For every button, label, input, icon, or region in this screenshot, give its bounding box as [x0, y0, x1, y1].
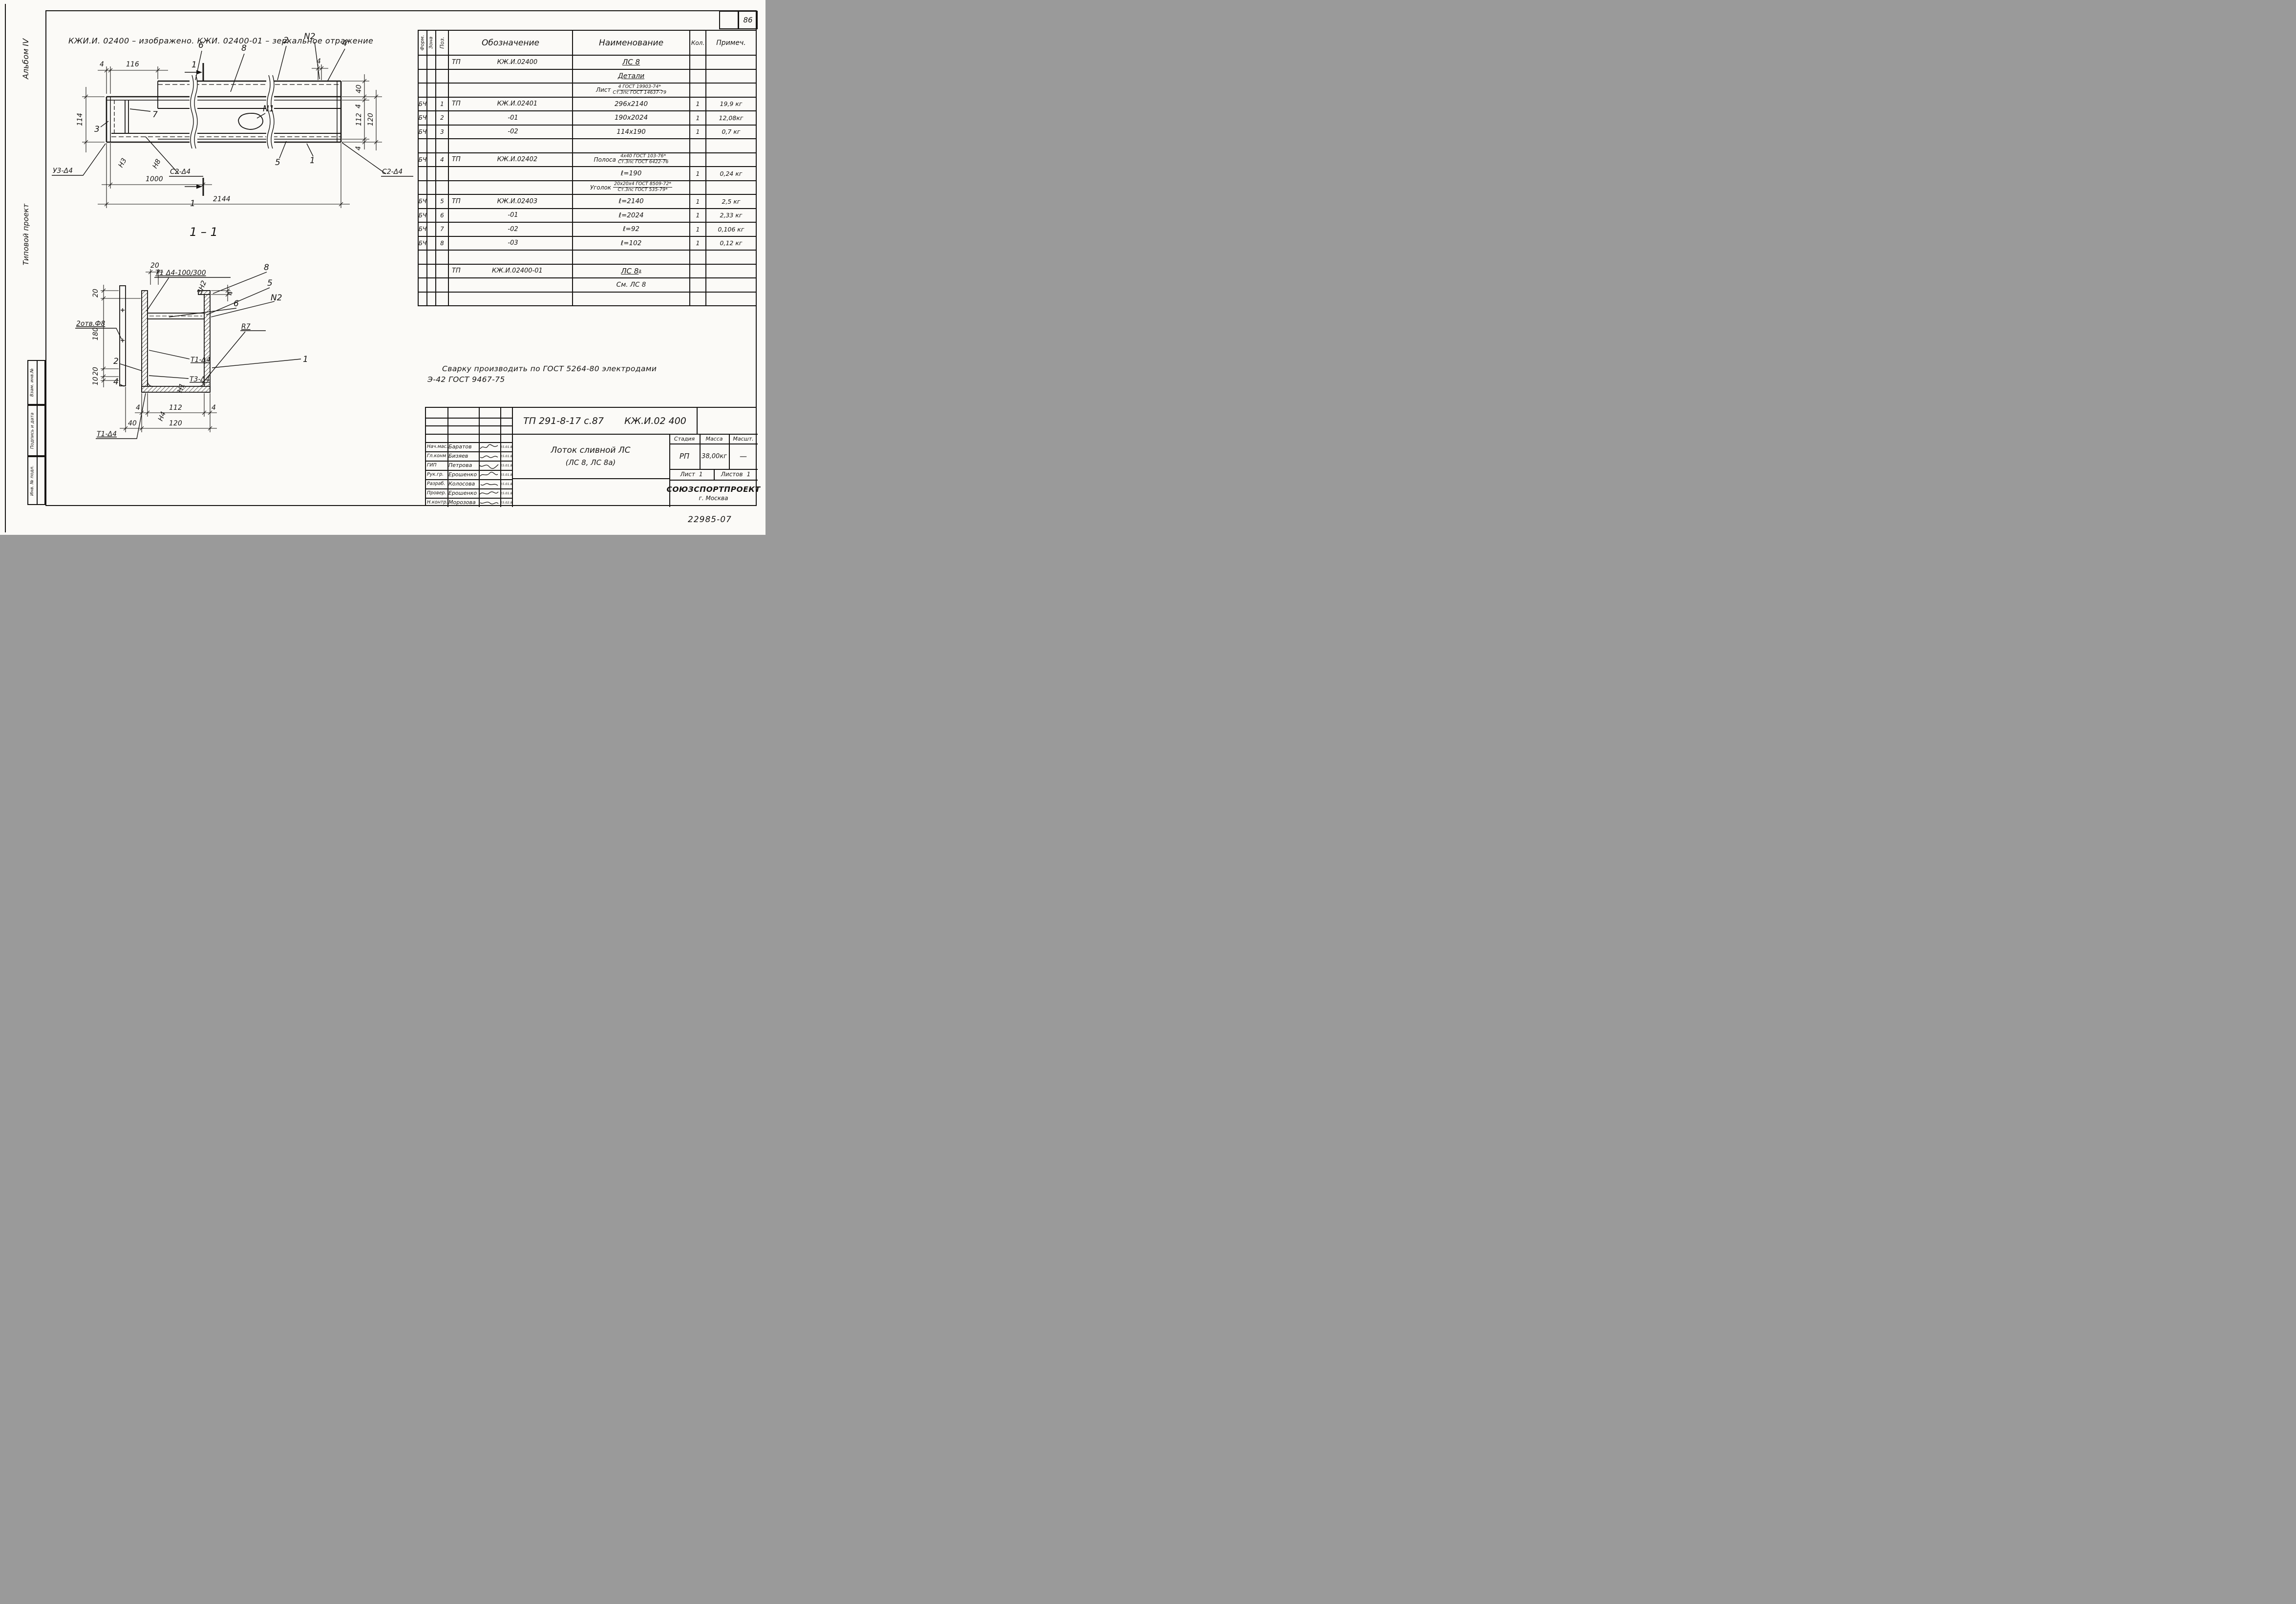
spec-row-poz4: БЧ4 ТПКЖ.И.02402 Полоса 4х40 ГОСТ 103-76…	[419, 152, 756, 167]
sec-label-t3: Т3-Δ4	[190, 376, 210, 383]
sec-callout-1: 1	[303, 355, 308, 364]
spec-row-l190: ℓ=190 10,24 кг	[419, 166, 756, 180]
tb-mass-value: 38,00кг	[700, 443, 729, 469]
tb-line	[512, 478, 669, 479]
plan-weld-s2-right: С2-Δ4	[382, 168, 403, 176]
plan-dim-112: 112	[355, 113, 363, 126]
tb-org-city: г. Москва	[699, 495, 728, 502]
plan-dim-40: 40	[355, 84, 363, 93]
plan-dim-4b: 4	[355, 146, 362, 150]
sec-dim-20a: 20	[92, 289, 100, 297]
spec-header-prim: Примеч.	[706, 31, 756, 55]
sec-dim-180: 180	[92, 327, 100, 340]
plan-section-mark-bottom-label: 1	[190, 199, 195, 209]
tb-scale-value: —	[729, 443, 758, 469]
sidebar-project-type-label: Типовой проект	[21, 204, 30, 265]
stamp-box-podpis: Подпись и дата	[27, 405, 45, 456]
plan-callout-8: 8	[241, 43, 247, 53]
plan-outline	[106, 81, 341, 142]
stamp-box-vzam: Взам. инв.№	[27, 360, 45, 405]
spec-row-poz3: БЧ3 -02 114х190 10,7 кг	[419, 125, 756, 139]
sec-callout-n2: N2	[271, 293, 282, 303]
tb-sheet-label: Лист	[680, 471, 695, 478]
spec-row-empty2	[419, 250, 756, 264]
personnel-row: Гл.конмБизяев 15.01.87	[426, 451, 512, 461]
stamp-box-inv-labelcell: Инв. № подл.	[28, 457, 38, 504]
sec-label-t1: Т1-Δ4	[191, 356, 211, 364]
title-block: ТП 291-8-17 с.87 КЖ.И.02 400 Нач.мас.Бар…	[425, 407, 757, 506]
personnel-row: Разраб.Колосова 15.01.87	[426, 479, 512, 488]
plan-callout-1: 1	[310, 156, 315, 166]
tb-line	[426, 418, 512, 419]
sec-dim-4a: 4	[136, 404, 140, 412]
page-number-empty-box	[719, 11, 739, 29]
stamp-box-inv: Инв. № подл.	[27, 456, 45, 505]
plan-view: 1 1 4 116 114	[48, 13, 419, 228]
personnel-row: Рук.гр.Ерошенко 15.01.87	[426, 470, 512, 479]
tb-sheets-total-label: Листов	[721, 471, 743, 478]
page-number: 86	[743, 16, 752, 24]
weld-note-line1: Сварку производить по ГОСТ 5264-80 элект…	[442, 364, 657, 373]
tb-sheets-total-value: 1	[747, 471, 751, 478]
spec-header-naim: Наименование	[573, 31, 690, 55]
sec-callout-2: 2	[113, 357, 119, 366]
tb-doc-band: ТП 291-8-17 с.87 КЖ.И.02 400	[513, 408, 697, 434]
sec-dim-20b: 20	[92, 367, 100, 376]
signature	[479, 470, 500, 479]
tb-sheet: Лист 1	[669, 469, 714, 480]
spec-row-poz5: БЧ5 ТПКЖ.И.02403 ℓ=2140 12,5 кг	[419, 194, 756, 208]
spec-header-oboz: Обозначение	[449, 31, 573, 55]
plan-callout-n2: N2	[304, 32, 316, 42]
spec-row-empty3	[419, 292, 756, 306]
sec-label-holes: 2отв.Ф8	[76, 320, 105, 328]
paper-edge-line	[5, 4, 6, 532]
spec-row-ls8a: ТПКЖ.И.02400-01 ЛС 8а	[419, 264, 756, 278]
spec-row-poz7: БЧ7 -02 ℓ=92 10,106 кг	[419, 222, 756, 236]
sec-dim-4b: 4	[212, 404, 216, 412]
plan-dim-120: 120	[367, 113, 375, 126]
signature	[479, 488, 500, 498]
page-number-box: 86	[738, 11, 758, 29]
sec-callout-6: 6	[234, 299, 239, 309]
stamp-box-podpis-labelcell: Подпись и дата	[28, 406, 38, 455]
sec-dim-112: 112	[169, 404, 182, 412]
tb-org-name: СОЮЗСПОРТПРОЕКТ	[666, 485, 760, 494]
tb-line	[426, 425, 512, 426]
tb-sheets-total: Листов 1	[714, 469, 758, 480]
stamp-box-vzam-labelcell: Взам. инв.№	[28, 361, 38, 404]
plan-mark-n3: Н3	[117, 157, 128, 169]
sec-callout-4: 4	[113, 377, 119, 387]
plan-callout-2: 2	[283, 36, 289, 45]
personnel-row: Нач.мас.Баратов 15.01.87	[426, 442, 512, 451]
tb-stage-header: Стадия	[669, 434, 700, 443]
spec-header-row: Форм. Зона Поз. Обозначение Наименование…	[419, 31, 756, 55]
plan-hole-n1	[238, 113, 263, 129]
plan-callout-7: 7	[152, 110, 158, 120]
tb-sheet-value: 1	[699, 471, 703, 478]
personnel-row: Провер.Ерошенко 15.01.87	[426, 488, 512, 498]
signature	[479, 451, 500, 461]
spec-header-kol: Кол.	[690, 31, 706, 55]
sidebar-album: Альбом IV	[10, 27, 42, 90]
spec-header-form: Форм.	[419, 31, 427, 55]
tb-line	[426, 434, 512, 435]
sec-mark-n4: Н4	[157, 410, 168, 422]
spec-row-poz8: БЧ8 -03 ℓ=102 10,12 кг	[419, 236, 756, 250]
spec-row-detali: Детали	[419, 69, 756, 83]
tb-title-line2: (ЛС 8, ЛС 8а)	[566, 458, 616, 467]
plan-mark-n8: Н8	[151, 158, 162, 170]
tb-mass-header: Масса	[700, 434, 729, 443]
plan-dim-2144: 2144	[213, 195, 231, 203]
plan-weld-s2-left: С2-Δ4	[170, 168, 191, 176]
sec-dim-120: 120	[169, 420, 182, 427]
sec-dim-20top: 20	[150, 262, 159, 270]
plan-dim-4a: 4	[355, 104, 362, 108]
plan-callout-6: 6	[198, 41, 204, 50]
tb-title: Лоток сливной ЛС (ЛС 8, ЛС 8а)	[513, 435, 668, 477]
plan-callout-3: 3	[94, 125, 100, 134]
spec-row-empty1	[419, 138, 756, 152]
personnel-row: ГИППетрова 15.01.87	[426, 461, 512, 470]
plan-dim-116: 116	[126, 61, 139, 68]
personnel-row: Н.контр.Морозова 15.02.87	[426, 498, 512, 507]
spec-header-poz: Поз.	[436, 31, 449, 55]
tb-stage-value: РП	[669, 443, 700, 469]
spec-row-ls8: ТПКЖ.И.02400 ЛС 8	[419, 55, 756, 69]
tb-doc-right: КЖ.И.02 400	[624, 416, 686, 426]
plan-dim-4-top: 4	[100, 61, 104, 68]
tb-line	[697, 408, 698, 434]
tb-scale-header: Масшт.	[729, 434, 758, 443]
tb-doc-left: ТП 291-8-17 с.87	[523, 416, 604, 426]
sec-label-t1b: Т1-Δ4	[97, 430, 117, 438]
weld-note-line2: Э-42 ГОСТ 9467-75	[427, 375, 505, 384]
plan-break-marks	[190, 75, 274, 148]
spec-row-poz2: БЧ2 -01 190х2024 112,08кг	[419, 110, 756, 125]
sidebar-project-type: Типовой проект	[10, 195, 42, 274]
drawing-sheet: 86 Альбом IV Типовой проект Взам. инв.№ …	[0, 0, 765, 535]
spec-row-sm-ls8: См. ЛС 8	[419, 277, 756, 292]
stamp-box-inv-label: Инв. № подл.	[30, 465, 35, 496]
sec-callout-8: 8	[264, 263, 269, 273]
plan-callout-5: 5	[275, 158, 280, 168]
plan-callout-4: 4	[342, 39, 347, 48]
stamp-box-vzam-label: Взам. инв.№	[30, 368, 35, 397]
plan-dim-114: 114	[76, 113, 84, 126]
archive-code: 22985-07	[688, 515, 732, 525]
spec-row-list-gost: Лист 4 ГОСТ 19903-74*Ст.3пс ГОСТ 14637-7…	[419, 83, 756, 97]
sec-label-weld-t1: Т1 Δ4-100/300	[155, 269, 206, 277]
spec-row-ugolok: Уголок 20х20х4 ГОСТ 8509-72*Ст.3пс ГОСТ …	[419, 180, 756, 194]
signature	[479, 461, 500, 470]
plan-dim-1000: 1000	[146, 175, 163, 183]
tb-title-line1: Лоток сливной ЛС	[551, 445, 630, 455]
stamp-box-podpis-label: Подпись и дата	[30, 412, 35, 449]
section-title: 1 – 1	[190, 225, 218, 239]
spec-table: Форм. Зона Поз. Обозначение Наименование…	[418, 30, 757, 306]
spec-row-poz1: БЧ1 ТПКЖ.И.02401 296х2140 119,9 кг	[419, 97, 756, 111]
plan-weld-u3: У3-Δ4	[53, 167, 73, 175]
sidebar-album-label: Альбом IV	[21, 38, 31, 79]
sec-dim-40: 40	[128, 420, 137, 427]
plan-callout-n1: N1	[263, 104, 275, 114]
signature	[479, 479, 500, 488]
tb-org: СОЮЗСПОРТПРОЕКТ г. Москва	[669, 480, 758, 507]
plan-section-mark-top-label: 1	[191, 60, 197, 70]
sec-label-r7: R7	[241, 323, 251, 331]
spec-row-poz6: БЧ6 -01 ℓ=2024 12,33 кг	[419, 208, 756, 222]
signature	[479, 442, 500, 451]
section-view: 1 – 1	[73, 217, 347, 462]
spec-header-zona: Зона	[427, 31, 436, 55]
sec-callout-5: 5	[267, 278, 273, 288]
sec-dim-4right: 4	[227, 291, 234, 295]
section-leader-lines	[75, 272, 301, 439]
signature	[479, 498, 500, 507]
sec-dim-10: 10	[92, 377, 100, 385]
